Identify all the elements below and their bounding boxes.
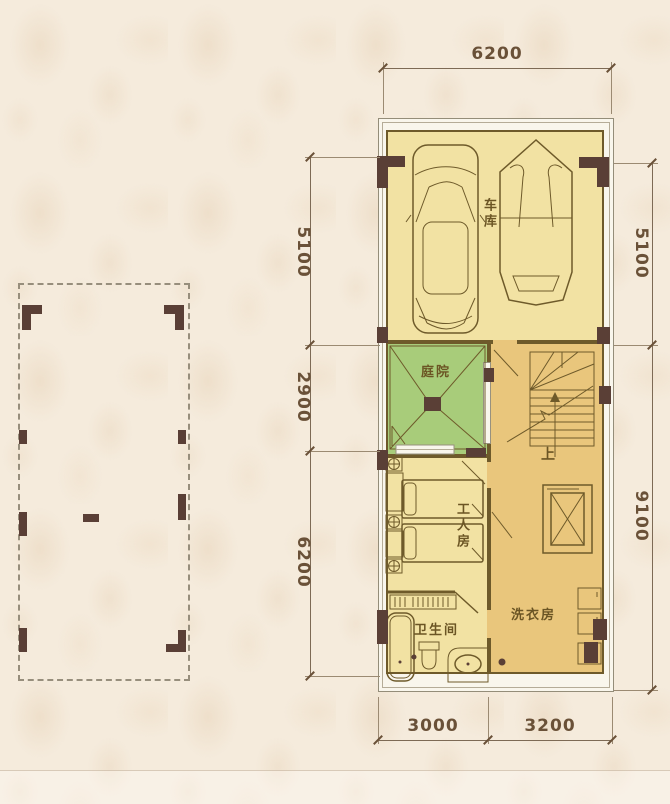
dim-bottom-left: 3000 [407,716,459,736]
dim-right-upper: 5100 [631,227,651,279]
column [19,628,27,652]
dim-line-top [383,68,611,69]
bed-icon [402,480,483,518]
column [377,327,388,343]
column [484,368,494,382]
column [593,619,607,640]
label-garage: 车库 [480,198,495,230]
workers-bath-drawing [386,456,489,674]
stair-laundry-drawing [489,342,604,674]
courtyard-center-drain [424,397,441,411]
nightstands-icon [386,457,403,573]
column [178,430,186,444]
label-workers-room: 工人房 [453,502,468,550]
floor-drain-icon [499,659,506,666]
column [19,512,27,536]
column [599,386,611,404]
column [377,156,388,188]
dim-right-lower: 9100 [631,490,651,542]
column [178,494,186,520]
toilet-icon [412,642,440,669]
dim-line-bottom [378,740,612,741]
column [19,430,27,444]
floor-plan-page: 车库 庭院 工人房 卫生间 洗衣房 上 6200 5100 2900 6200 … [0,0,670,804]
label-bathroom: 卫生间 [414,624,459,639]
door-leaf-garage [494,350,518,376]
dim-ext [305,157,380,158]
column [83,514,99,522]
column [597,327,610,344]
dim-bottom-right: 3200 [524,716,576,736]
label-courtyard: 庭院 [421,366,451,381]
door-leaf-hall [492,512,512,538]
stair-up-arrow [550,392,560,402]
radiator-icon [390,595,456,609]
car-outline-icon [500,140,572,305]
dim-ext [383,62,384,114]
staircase-icon [507,352,594,457]
garage-cars-drawing [386,130,604,342]
car-sedan-icon [406,145,485,333]
courtyard-drawing [386,342,489,456]
door-leaf-courtyard [392,426,405,446]
dim-left-middle: 2900 [293,371,313,423]
wallpaper-seam [0,770,670,804]
dim-line-right [652,163,653,690]
dim-ext [305,676,380,677]
column [377,450,388,470]
dim-left-upper: 5100 [293,226,313,278]
column [178,630,186,652]
column [597,157,609,187]
column [466,448,486,457]
dim-ext [305,451,380,452]
dashed-building-outline [18,283,190,681]
elevator-icon [543,485,592,553]
dim-ext [305,345,380,346]
label-stairs-up: 上 [541,447,555,463]
dim-top: 6200 [471,44,523,64]
label-laundry: 洗衣房 [511,609,556,624]
bathtub-icon [387,613,414,681]
column [22,305,31,330]
bed-icon [402,524,483,562]
column [377,610,388,644]
dim-left-lower: 6200 [293,536,313,588]
dim-ext [611,62,612,114]
column [584,642,598,663]
column [175,305,184,330]
